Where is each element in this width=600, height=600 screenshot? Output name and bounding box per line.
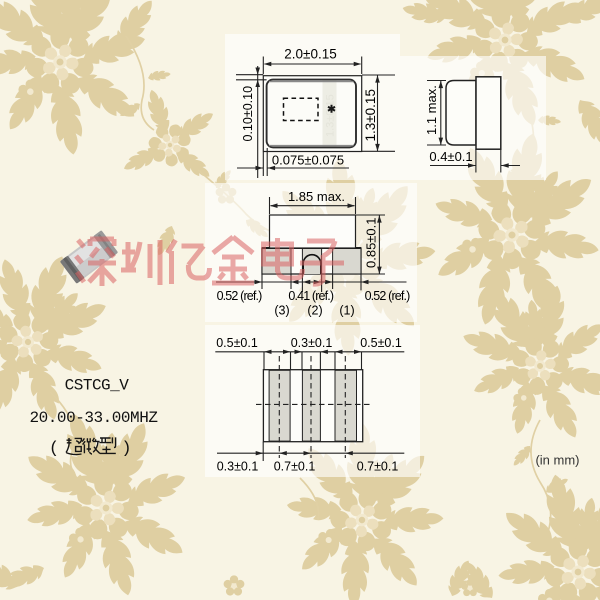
svg-text:0.41 (ref.): 0.41 (ref.) bbox=[288, 289, 334, 303]
svg-text:CSTCG_V: CSTCG_V bbox=[65, 377, 130, 395]
svg-text:0.5±0.1: 0.5±0.1 bbox=[360, 336, 402, 350]
svg-text:): ) bbox=[121, 440, 131, 459]
svg-text:1.3±0.15: 1.3±0.15 bbox=[325, 94, 337, 137]
svg-text:1.3±0.15: 1.3±0.15 bbox=[363, 89, 378, 141]
svg-text:20.00-33.00MHZ: 20.00-33.00MHZ bbox=[30, 409, 159, 427]
svg-text:0.7±0.1: 0.7±0.1 bbox=[357, 460, 399, 474]
svg-text:0.3±0.1: 0.3±0.1 bbox=[217, 460, 259, 474]
svg-text:0.7±0.1: 0.7±0.1 bbox=[274, 460, 316, 474]
svg-text:0.3±0.1: 0.3±0.1 bbox=[291, 336, 333, 350]
svg-text:(2): (2) bbox=[307, 304, 322, 318]
svg-text:0.5±0.1: 0.5±0.1 bbox=[216, 336, 258, 350]
svg-text:2.0±0.15: 2.0±0.15 bbox=[284, 47, 336, 62]
svg-text:(in mm): (in mm) bbox=[535, 453, 579, 468]
svg-text:0.075±0.075: 0.075±0.075 bbox=[272, 153, 344, 168]
svg-text:1.85 max.: 1.85 max. bbox=[288, 189, 345, 204]
svg-text:0.52 (ref.): 0.52 (ref.) bbox=[365, 289, 411, 303]
svg-text:(1): (1) bbox=[339, 304, 354, 318]
svg-text:0.4±0.1: 0.4±0.1 bbox=[429, 149, 472, 164]
svg-text:0.10±0.10: 0.10±0.10 bbox=[241, 86, 255, 142]
svg-text:1.1 max.: 1.1 max. bbox=[424, 85, 439, 135]
svg-text:0.52 (ref.): 0.52 (ref.) bbox=[217, 289, 263, 303]
svg-text:(3): (3) bbox=[274, 304, 289, 318]
svg-text:(: ( bbox=[49, 440, 59, 459]
svg-text:0.85±0.1: 0.85±0.1 bbox=[363, 217, 378, 268]
